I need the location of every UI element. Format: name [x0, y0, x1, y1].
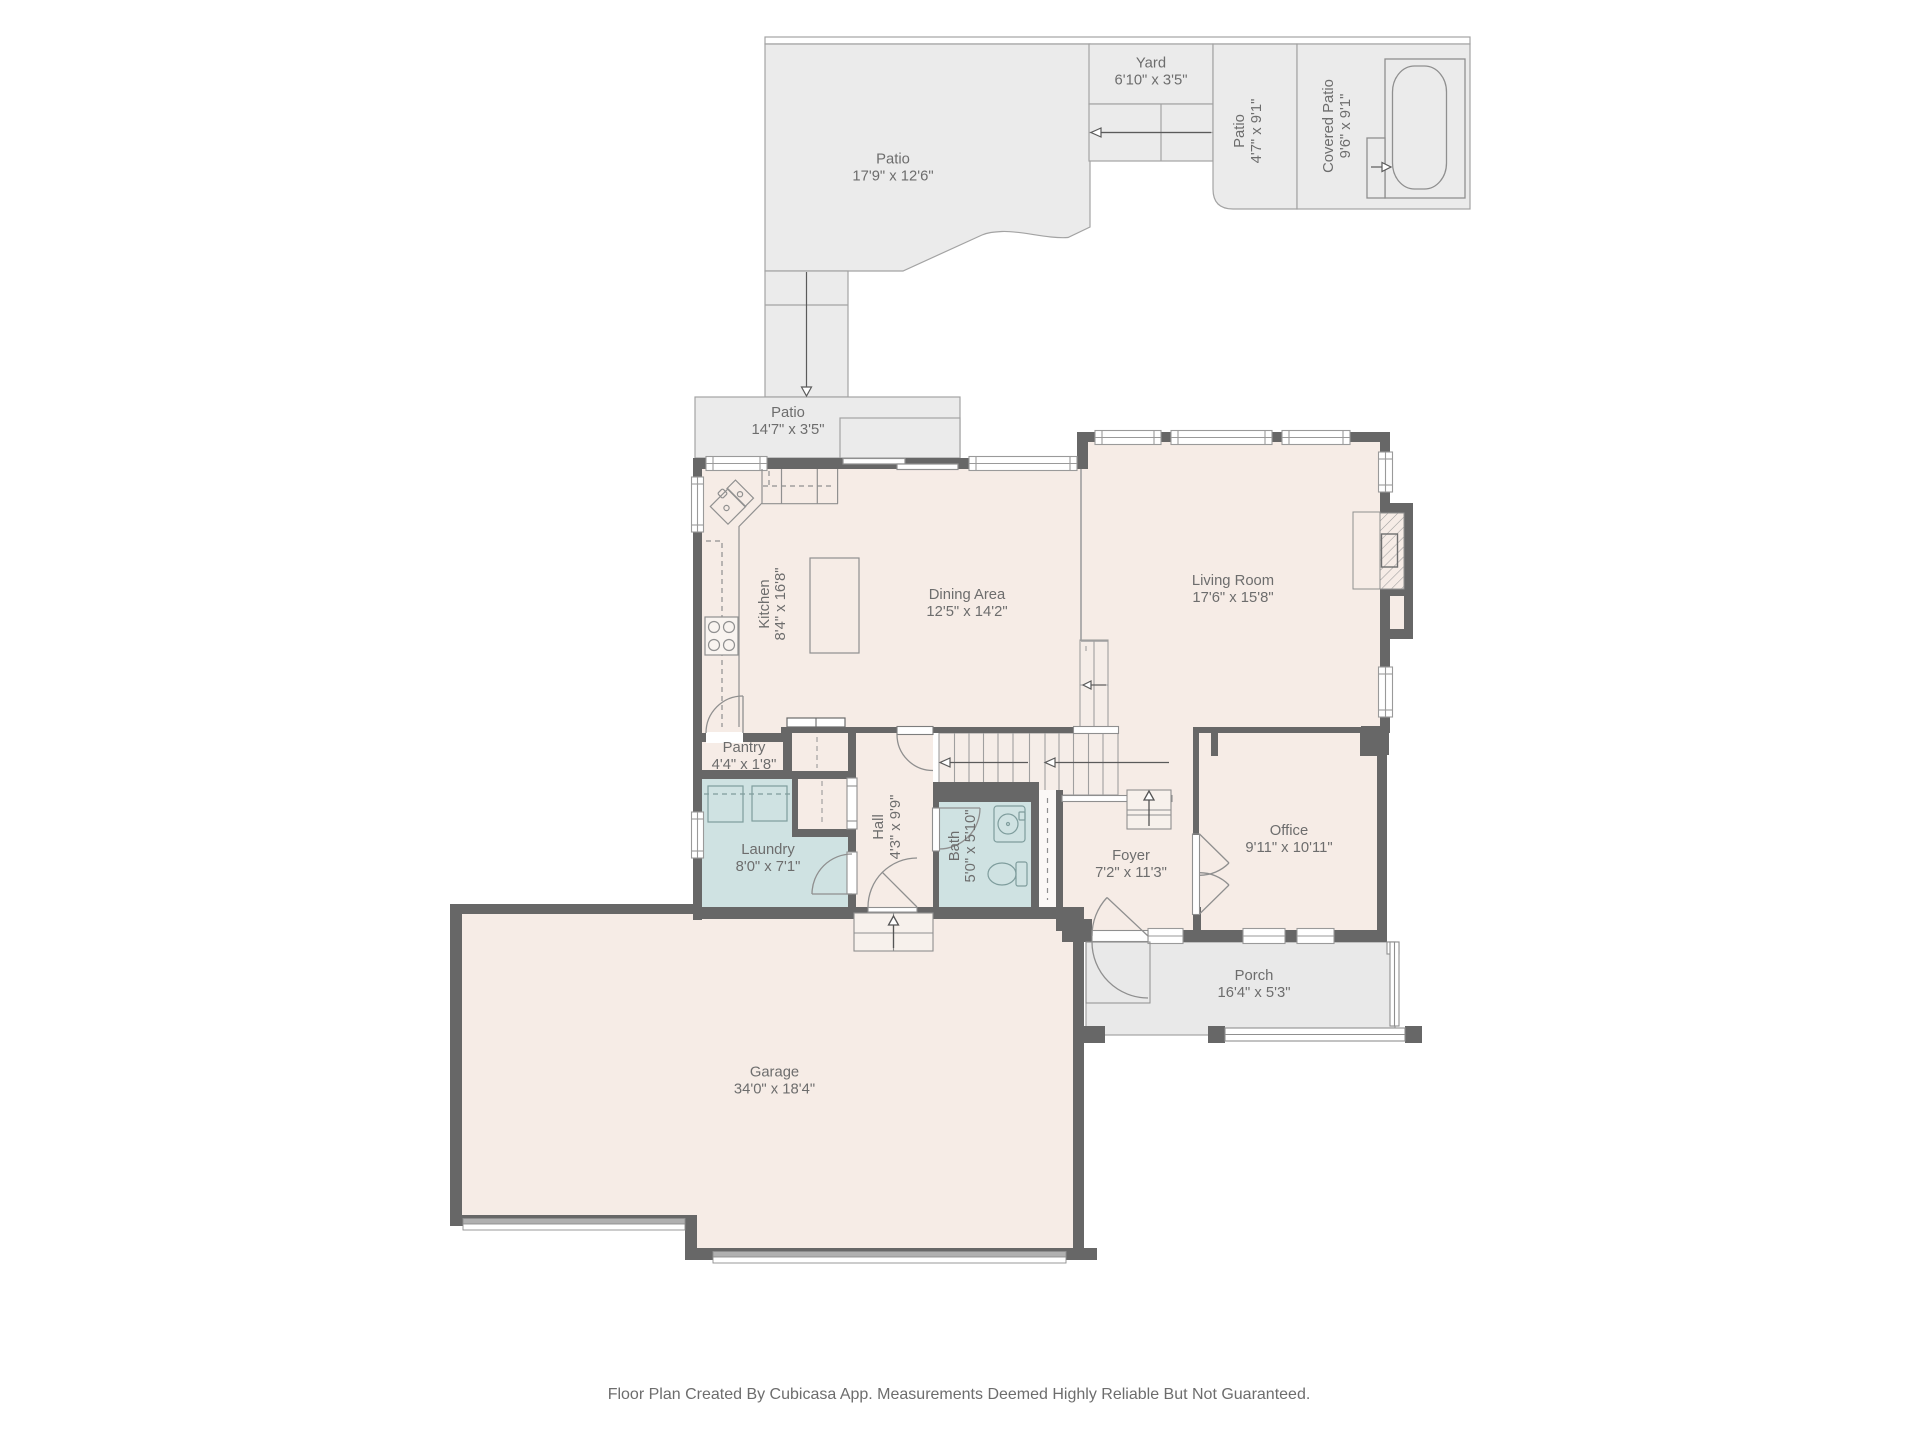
svg-text:Laundry: Laundry	[741, 842, 795, 858]
svg-text:Hall: Hall	[871, 814, 887, 840]
svg-text:4'4" x 1'8": 4'4" x 1'8"	[712, 757, 777, 773]
svg-text:Living Room: Living Room	[1192, 573, 1274, 589]
svg-text:4'3" x 9'9": 4'3" x 9'9"	[888, 795, 904, 860]
svg-text:9'11" x 10'11": 9'11" x 10'11"	[1245, 840, 1332, 856]
svg-text:Patio: Patio	[771, 405, 805, 421]
svg-text:5'0" x 5'10": 5'0" x 5'10"	[963, 810, 979, 883]
svg-text:Garage: Garage	[750, 1065, 799, 1081]
svg-text:Yard: Yard	[1136, 56, 1166, 72]
svg-text:Covered Patio: Covered Patio	[1321, 79, 1337, 173]
svg-text:Foyer: Foyer	[1112, 848, 1150, 864]
svg-text:9'6" x 9'1": 9'6" x 9'1"	[1338, 94, 1354, 159]
svg-text:34'0" x 18'4": 34'0" x 18'4"	[734, 1082, 815, 1098]
svg-text:Bath: Bath	[947, 831, 963, 861]
svg-text:Kitchen: Kitchen	[757, 579, 773, 628]
svg-text:Patio: Patio	[876, 152, 910, 168]
svg-text:Floor Plan Created By Cubicasa: Floor Plan Created By Cubicasa App. Meas…	[608, 1386, 1311, 1403]
svg-text:6'10" x 3'5": 6'10" x 3'5"	[1115, 73, 1188, 89]
svg-text:14'7" x 3'5": 14'7" x 3'5"	[752, 422, 825, 438]
svg-text:4'7" x 9'1": 4'7" x 9'1"	[1249, 99, 1265, 164]
svg-text:Pantry: Pantry	[723, 740, 766, 756]
svg-text:Patio: Patio	[1232, 114, 1248, 148]
svg-text:17'9" x 12'6": 17'9" x 12'6"	[852, 169, 933, 185]
svg-text:Office: Office	[1270, 823, 1308, 839]
svg-text:8'4" x 16'8": 8'4" x 16'8"	[773, 568, 789, 641]
svg-text:8'0" x 7'1": 8'0" x 7'1"	[736, 859, 801, 875]
svg-text:7'2" x 11'3": 7'2" x 11'3"	[1095, 865, 1167, 881]
svg-text:17'6" x 15'8": 17'6" x 15'8"	[1192, 590, 1273, 606]
svg-text:Porch: Porch	[1235, 968, 1274, 984]
svg-text:16'4" x 5'3": 16'4" x 5'3"	[1218, 985, 1291, 1001]
svg-text:12'5" x 14'2": 12'5" x 14'2"	[926, 604, 1007, 620]
svg-text:Dining Area: Dining Area	[929, 587, 1006, 603]
